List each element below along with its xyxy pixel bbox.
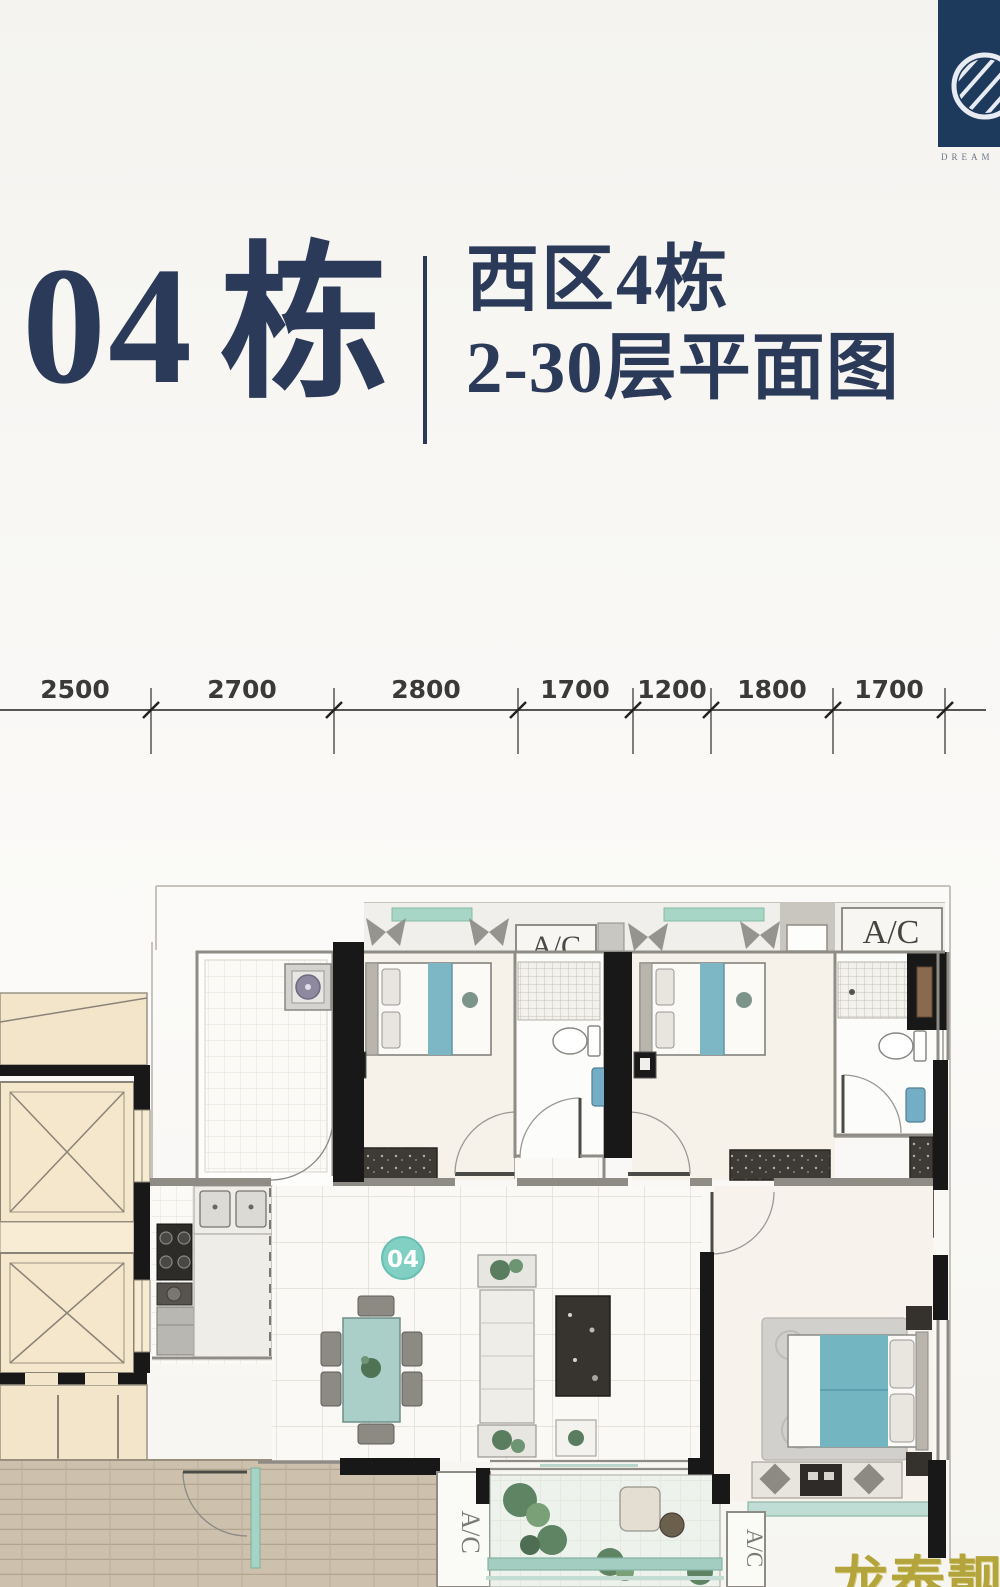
bed-icon: [366, 963, 491, 1055]
elevator-shaft: [0, 1253, 134, 1373]
dimension-label: 1200: [637, 675, 707, 704]
dimension-label: 1800: [737, 675, 807, 704]
nightstand: [906, 1306, 932, 1330]
ac-label-bottom-left: A/C: [456, 1510, 485, 1553]
bedroom-2: [340, 952, 517, 1180]
multipurpose-room: [197, 952, 333, 1186]
counter: [194, 1234, 272, 1358]
ac-outdoor-unit: [787, 925, 827, 951]
toilet-icon: [553, 1026, 600, 1056]
elevator-core: [0, 993, 150, 1491]
dimension-label: 2800: [391, 675, 461, 704]
unit-badge: 04: [382, 1237, 424, 1279]
dimension-label: 2700: [207, 675, 277, 704]
ac-platform-top-right: A/C: [842, 908, 942, 954]
watermark: 龙泰靓房: [833, 1537, 1000, 1587]
railing: [488, 1558, 722, 1570]
entry-side-panel: [251, 1468, 260, 1568]
bench: [752, 1462, 902, 1498]
ac-platform-bottom-left: A/C: [437, 1468, 490, 1587]
wardrobe: [730, 1150, 830, 1180]
ac-label-bottom-right: A/C: [742, 1529, 767, 1567]
dimension-label: 1700: [854, 675, 924, 704]
floor-plan-svg: 2500 2700 2800 1700 1200 1800 1700: [0, 0, 1000, 1587]
ac-platform-bottom-right: A/C: [727, 1512, 767, 1587]
ceiling-ac-icon: [285, 964, 331, 1010]
drain: [849, 989, 855, 995]
bedroom-3: [628, 952, 835, 1180]
bathroom-1: [515, 952, 613, 1178]
master-bedroom: [712, 1186, 933, 1516]
floor-plan: A/C A/C: [0, 886, 950, 1587]
dimension-label: 1700: [540, 675, 610, 704]
toilet-icon: [879, 1031, 926, 1061]
stove-icon: [157, 1224, 192, 1280]
bed-icon: [640, 963, 765, 1055]
washbasin-icon: [906, 1088, 925, 1122]
elevator-shaft: [0, 1082, 134, 1222]
window-strip: [392, 908, 472, 921]
svg-text:04: 04: [387, 1247, 419, 1273]
public-corridor: [0, 1460, 437, 1587]
bed-icon: [788, 1332, 928, 1450]
armchair-icon: [620, 1487, 660, 1531]
sofa-icon: [478, 1255, 536, 1457]
balcony: [486, 1475, 724, 1587]
dimension-ruler: 2500 2700 2800 1700 1200 1800 1700: [0, 675, 986, 754]
window-strip: [664, 908, 764, 921]
floor-plan-flyer: DREAM 04 栋 西区4栋 2-30层平面图: [0, 0, 1000, 1587]
bay-window: [748, 1502, 932, 1516]
dimension-label: 2500: [40, 675, 110, 704]
sliding-door-glass: [540, 1464, 638, 1467]
ac-label-top-right: A/C: [863, 914, 920, 951]
round-table-icon: [660, 1513, 684, 1537]
fridge-icon: [157, 1307, 194, 1355]
tv-cabinet-icon: [556, 1296, 610, 1396]
